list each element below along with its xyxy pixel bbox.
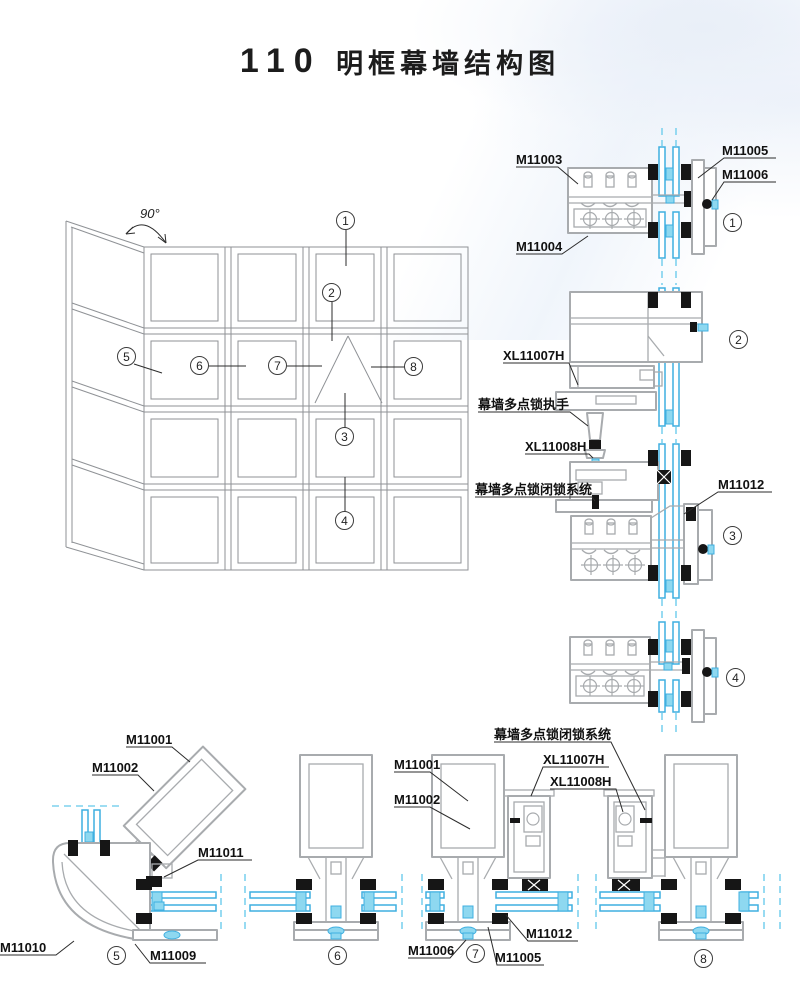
label-m11012-top: M11012 xyxy=(718,477,764,492)
angle-label: 90° xyxy=(140,206,160,221)
lock-handle-shape xyxy=(587,413,603,440)
label-m11010: M11010 xyxy=(0,940,46,955)
label-m11006-top: M11006 xyxy=(722,167,768,182)
callout-4-elevation: 4 xyxy=(335,511,354,530)
section-detail-8 xyxy=(604,755,743,940)
callout-7-section: 7 xyxy=(466,944,485,963)
callout-3-elevation: 3 xyxy=(335,427,354,446)
callout-6-section: 6 xyxy=(328,946,347,965)
section-glass-vertical xyxy=(659,128,679,734)
label-m11012-bottom: M11012 xyxy=(526,926,572,941)
label-xl11008h-top: XL11008H xyxy=(525,439,586,454)
section-detail-4 xyxy=(570,630,718,722)
callout-4-section: 4 xyxy=(726,668,745,687)
lock-system-screw xyxy=(592,495,599,509)
label-m11011: M11011 xyxy=(198,845,244,860)
callout-1-section: 1 xyxy=(723,213,742,232)
callout-8-section: 8 xyxy=(694,949,713,968)
section-detail-3 xyxy=(571,504,714,584)
section-detail-2 xyxy=(556,292,708,512)
vent-opening-symbol xyxy=(315,336,382,403)
label-lock-system-bottom: 幕墙多点锁闭锁系统 xyxy=(494,727,611,742)
section-detail-6 xyxy=(294,755,378,940)
label-m11006-bottom: M11006 xyxy=(408,943,454,958)
label-m11002-mullion: M11002 xyxy=(394,792,440,807)
callout-7-elevation: 7 xyxy=(268,356,287,375)
callout-1-elevation: 1 xyxy=(336,211,355,230)
label-m11002-corner: M11002 xyxy=(92,760,138,775)
label-m11003: M11003 xyxy=(516,152,562,167)
callout-5-section: 5 xyxy=(107,946,126,965)
section-detail-7 xyxy=(426,755,554,940)
label-lock-handle: 幕墙多点锁执手 xyxy=(478,397,569,412)
callout-2-section: 2 xyxy=(729,330,748,349)
label-m11005-bottom: M11005 xyxy=(495,950,541,965)
label-lock-system-top: 幕墙多点锁闭锁系统 xyxy=(475,482,592,497)
label-m11004: M11004 xyxy=(516,239,562,254)
label-m11001-mullion: M11001 xyxy=(394,757,440,772)
label-xl11007h-bottom: XL11007H xyxy=(543,752,604,767)
label-xl11008h-bottom: XL11008H xyxy=(550,774,611,789)
callout-5-elevation: 5 xyxy=(117,347,136,366)
callout-2-elevation: 2 xyxy=(322,283,341,302)
label-m11009: M11009 xyxy=(150,948,196,963)
label-m11001-corner: M11001 xyxy=(126,732,172,747)
callout-8-elevation: 8 xyxy=(404,357,423,376)
callout-6-elevation: 6 xyxy=(190,356,209,375)
label-m11005-top: M11005 xyxy=(722,143,768,158)
label-xl11007h-top: XL11007H xyxy=(503,348,564,363)
callout-3-section: 3 xyxy=(723,526,742,545)
section-detail-1 xyxy=(568,160,718,254)
elevation-drawing xyxy=(66,221,468,570)
curtain-wall-drawing xyxy=(0,0,800,999)
